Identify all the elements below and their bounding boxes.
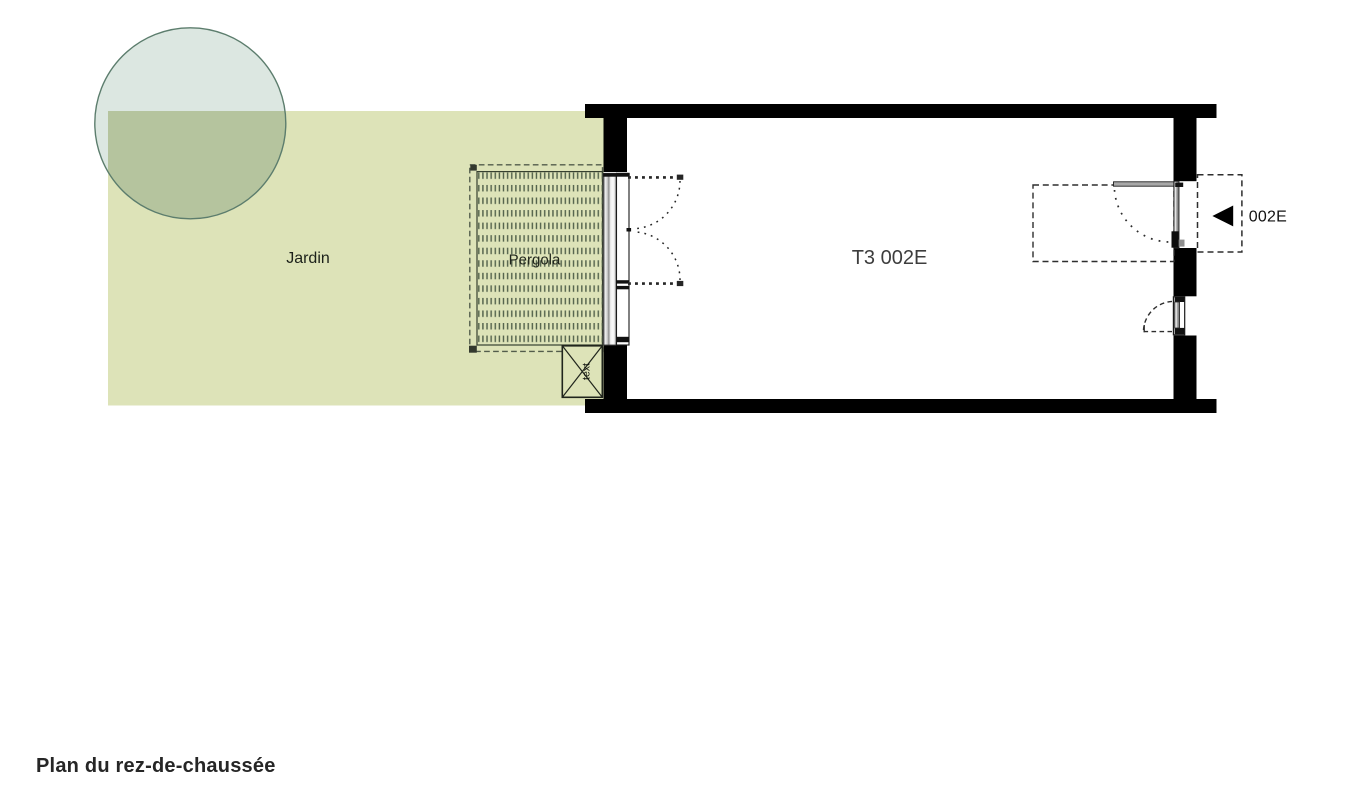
svg-text:T3 002E: T3 002E xyxy=(852,247,928,269)
svg-text:Plan du rez-de-chaussée: Plan du rez-de-chaussée xyxy=(36,755,276,777)
svg-text:Pergola: Pergola xyxy=(509,252,561,269)
svg-text:002E: 002E xyxy=(1249,209,1287,226)
svg-text:Jardin: Jardin xyxy=(286,250,330,267)
svg-text:text: text xyxy=(581,363,593,380)
